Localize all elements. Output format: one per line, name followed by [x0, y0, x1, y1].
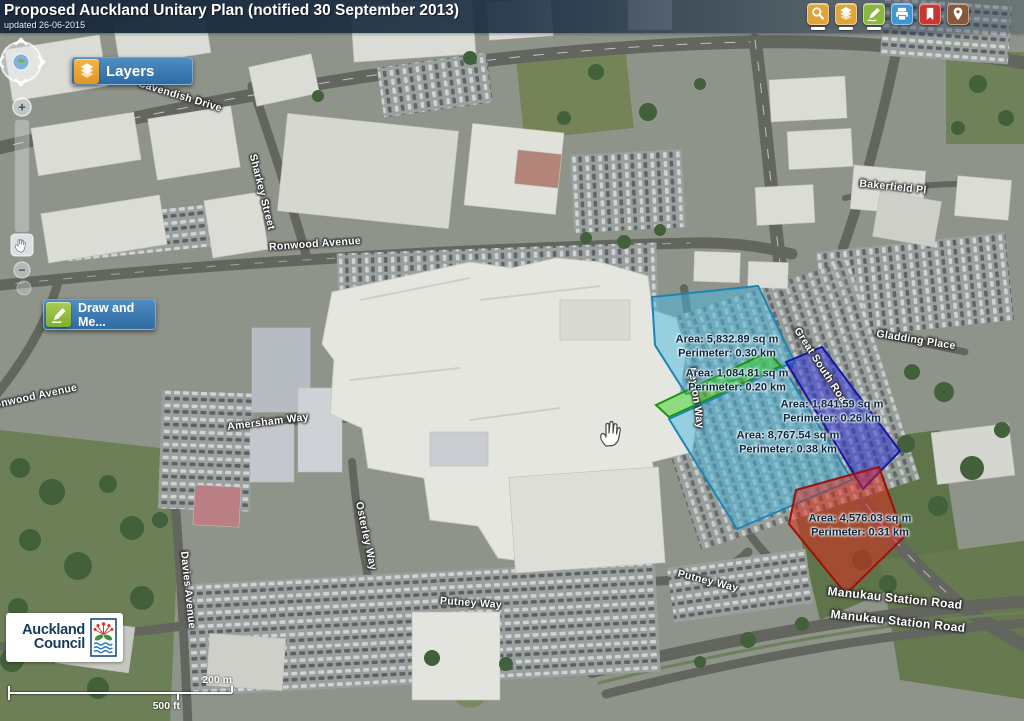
scale-bar: 200 m 500 ft — [6, 672, 250, 712]
pencil-icon — [865, 5, 883, 23]
zoom-slider-track[interactable] — [15, 120, 29, 232]
bookmarks-button[interactable] — [919, 3, 941, 25]
svg-text:200 m: 200 m — [202, 674, 232, 686]
measurement-label: Area: 1,841.59 sq mPerimeter: 0.26 km — [781, 399, 884, 426]
map-pin-icon — [949, 5, 967, 23]
map-navigation-control: + − — [0, 36, 48, 298]
layers-panel-label: Layers — [106, 63, 154, 80]
bookmark-icon — [921, 5, 939, 23]
app-title: Proposed Auckland Unitary Plan (notified… — [4, 2, 459, 20]
pencil-icon — [46, 302, 71, 327]
svg-text:+: + — [18, 100, 26, 115]
layers-panel-button[interactable]: Layers — [71, 57, 193, 85]
map-viewport: Cavendish DriveSharkey StreetRonwood Ave… — [0, 0, 1024, 721]
updated-date: updated 26-06-2015 — [4, 20, 85, 30]
layers-active-indicator — [839, 27, 853, 30]
nav-extra-button[interactable] — [17, 281, 31, 295]
pan-hand-cursor — [594, 415, 626, 449]
draw-panel-label: Draw and Me... — [78, 301, 155, 329]
measurement-label: Area: 4,576.03 sq mPerimeter: 0.31 km — [809, 513, 912, 540]
layers-icon — [74, 59, 99, 84]
draw-measure-panel-button[interactable]: Draw and Me... — [43, 299, 156, 330]
search-button[interactable] — [807, 3, 829, 25]
magnifier-icon — [809, 5, 827, 23]
draw-measure-button[interactable] — [863, 3, 885, 25]
measurement-label: Area: 5,832.89 sq mPerimeter: 0.30 km — [676, 334, 779, 361]
top-toolbar — [806, 3, 969, 30]
measurement-label: Area: 8,767.54 sq mPerimeter: 0.38 km — [737, 430, 840, 457]
layers-toggle-button[interactable] — [835, 3, 857, 25]
measurement-label: Area: 1,084.81 sq mPerimeter: 0.20 km — [686, 368, 789, 395]
svg-text:500 ft: 500 ft — [153, 700, 181, 712]
search-active-indicator — [811, 27, 825, 30]
pan-control[interactable] — [0, 39, 44, 85]
print-button[interactable] — [891, 3, 913, 25]
council-emblem-icon — [90, 618, 117, 657]
zoom-out-button[interactable]: − — [14, 262, 30, 278]
pan-tool-button[interactable] — [11, 234, 33, 256]
auckland-council-logo: Auckland Council — [6, 613, 123, 662]
layers-icon — [837, 5, 855, 23]
printer-icon — [893, 5, 911, 23]
logo-word-2: Council — [22, 638, 85, 652]
zoom-in-button[interactable]: + — [13, 98, 31, 116]
locate-button[interactable] — [947, 3, 969, 25]
draw-active-indicator — [867, 27, 881, 30]
svg-text:−: − — [18, 263, 25, 277]
